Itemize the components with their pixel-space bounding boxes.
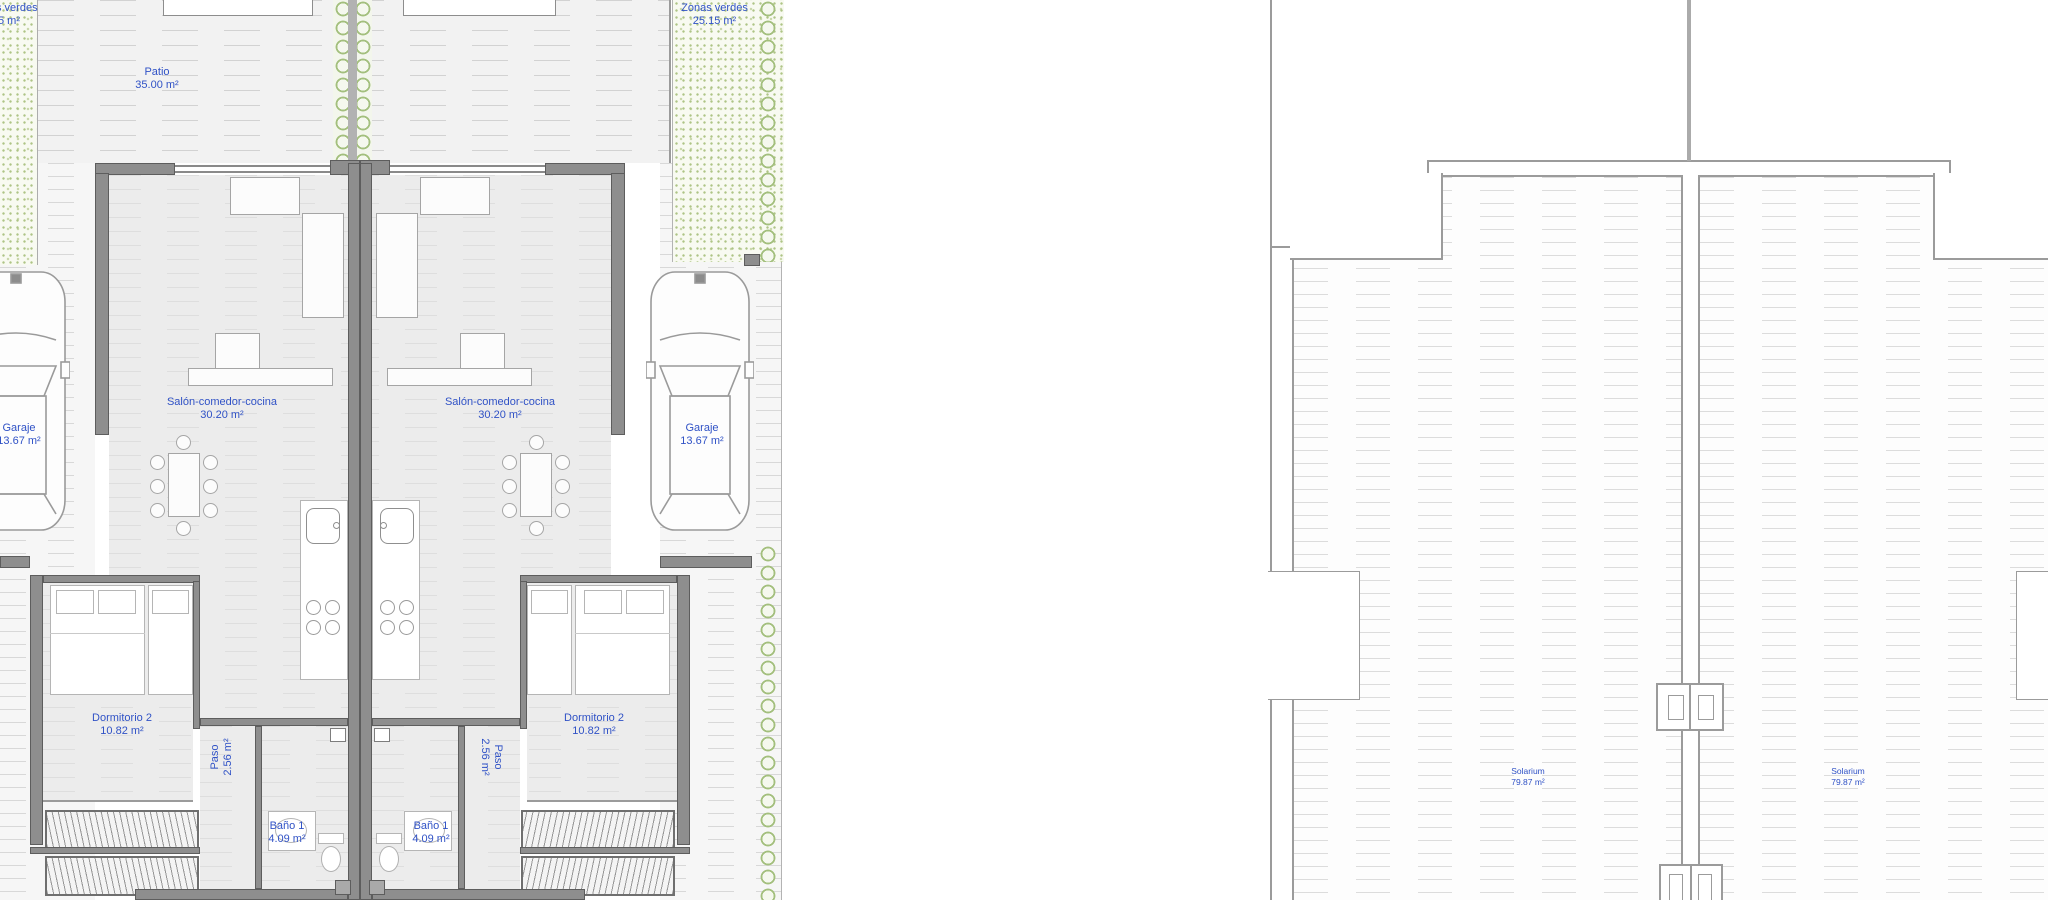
- porch-column: [335, 880, 351, 895]
- roof-outline: [1270, 0, 1272, 900]
- window-top: [175, 165, 330, 173]
- chair: [176, 521, 191, 536]
- wall-party: [348, 163, 360, 900]
- wall-bedroom-left: [30, 575, 43, 845]
- wall-left-exterior: [95, 173, 109, 435]
- door-leaf: [330, 728, 346, 742]
- kitchen-faucet: [333, 522, 340, 529]
- wall-bottom: [135, 889, 348, 900]
- terrace-left-step-mask: [1290, 173, 1443, 260]
- hob-burner: [325, 600, 340, 615]
- pillow: [56, 590, 94, 614]
- car-top-view-icon: [646, 266, 754, 536]
- chair: [150, 503, 165, 518]
- wall-bedroom-top: [43, 575, 200, 583]
- chair: [203, 455, 218, 470]
- wall-bedroom-right: [193, 581, 200, 729]
- wall-hall-bath: [255, 726, 262, 889]
- pillow: [152, 590, 189, 614]
- room-label-solarium-left: Solarium 79.87 m²: [1468, 766, 1588, 787]
- hedge-right-bottom: [758, 545, 780, 900]
- room-label-bano-right: Baño 1 4.09 m²: [381, 820, 481, 846]
- ground-floor-plan: s verdes 5 m² Patio 35.00 m² Zonas verde…: [0, 0, 790, 900]
- room-label-paso-left: Paso 2.56 m²: [209, 724, 237, 790]
- room-label-zonas-verdes: Zonas verdes 25.15 m²: [652, 2, 777, 28]
- pergola-left: [163, 0, 313, 16]
- fence-post: [744, 254, 760, 266]
- terrace-left: [1292, 175, 1683, 900]
- chair: [203, 503, 218, 518]
- room-label-salon-right: Salón-comedor-cocina 30.20 m²: [420, 396, 580, 422]
- pergola-right: [403, 0, 556, 16]
- chair: [203, 479, 218, 494]
- hob-burner: [306, 620, 321, 635]
- chair: [150, 479, 165, 494]
- room-label-garaje-left: Garaje 13.67 m²: [0, 422, 64, 448]
- tv-bench: [188, 368, 333, 386]
- roof-chimney: [1656, 683, 1724, 731]
- bedroom-bottom-line: [43, 800, 193, 802]
- garage-wall-left: [0, 556, 30, 568]
- room-label-paso-right: Paso 2.56 m²: [476, 724, 504, 790]
- room-label-patio: Patio 35.00 m²: [105, 66, 209, 92]
- bed-fold-line: [50, 633, 145, 634]
- terrace-right-step-mask: [1933, 173, 2048, 260]
- chair: [150, 455, 165, 470]
- terrace-right: [1698, 175, 2048, 900]
- floor-plan-canvas: s verdes 5 m² Patio 35.00 m² Zonas verde…: [0, 0, 2048, 900]
- wardrobe-row: [45, 810, 199, 850]
- room-label-dormitorio-right: Dormitorio 2 10.82 m²: [534, 712, 654, 738]
- pillow: [98, 590, 136, 614]
- hob-burner: [306, 600, 321, 615]
- car-top-view-icon: [0, 266, 70, 536]
- toilet-bowl: [321, 846, 341, 872]
- room-label-solarium-right: Solarium 79.87 m²: [1788, 766, 1908, 787]
- sofa: [302, 213, 344, 318]
- room-label-zonas-verdes-clipped: s verdes 5 m²: [0, 2, 60, 28]
- chair: [176, 435, 191, 450]
- unit-right: [360, 163, 690, 900]
- unit-left: [30, 163, 360, 900]
- hedge-right-top: [758, 0, 780, 262]
- room-label-salon-left: Salón-comedor-cocina 30.20 m²: [142, 396, 302, 422]
- dining-table: [168, 453, 200, 517]
- terrace-left-notch: [1268, 571, 1360, 700]
- room-label-bano-left: Baño 1 4.09 m²: [237, 820, 337, 846]
- sofa-seat: [230, 177, 300, 215]
- roof-chimney-bottom: [1659, 864, 1723, 900]
- terrace-right-notch: [2016, 571, 2048, 700]
- wardrobe-divider: [30, 847, 200, 854]
- room-label-dormitorio-left: Dormitorio 2 10.82 m²: [62, 712, 182, 738]
- room-label-garaje-right: Garaje 13.67 m²: [657, 422, 747, 448]
- solarium-roof-plan: Solarium 79.87 m² Solarium 79.87 m²: [1260, 0, 2048, 900]
- hob-burner: [325, 620, 340, 635]
- party-wall-stem: [1687, 0, 1691, 161]
- hedge-center: [333, 0, 372, 163]
